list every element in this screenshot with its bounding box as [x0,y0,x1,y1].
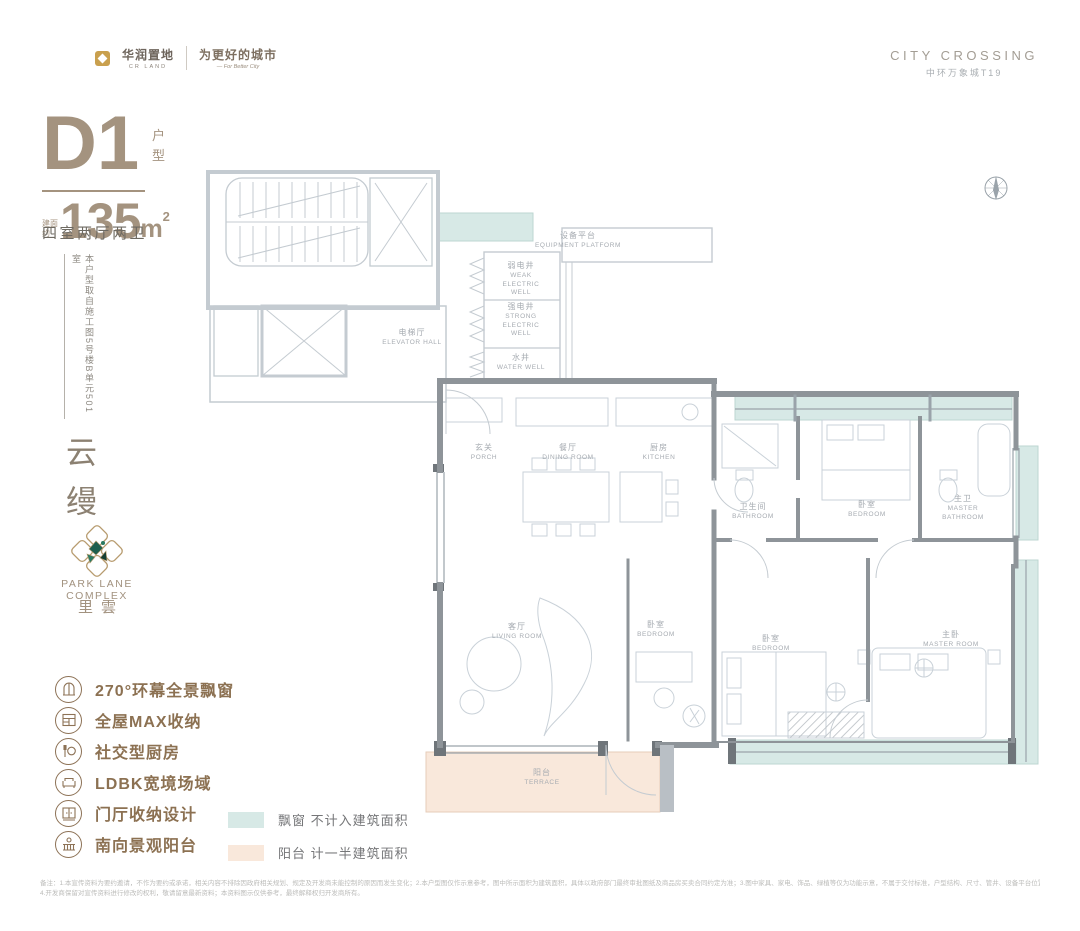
page: 华润置地 CR LAND 为更好的城市 — For Better City CI… [0,0,1080,931]
furniture [446,398,1010,738]
core-block [208,172,446,402]
windows [437,409,1026,762]
room-label-living-room: 客厅 LIVING ROOM [492,622,542,642]
room-label-equipment-platform: 设备平台 EQUIPMENT PLATFORM [535,231,621,251]
room-label-terrace: 阳台 TERRACE [524,768,559,788]
room-label-porch: 玄关 PORCH [471,443,497,463]
room-label-elevator-hall: 电梯厅 ELEVATOR HALL [382,328,441,348]
room-label-dining-room: 餐厅 DINING ROOM [542,443,593,463]
disclaimer: 备注：1.本宣传资料为要约邀请，不作为要约或承诺，相关内容不排除因政府相关规划、… [40,879,1040,900]
room-label-bedroom-1: 卧室 BEDROOM [848,500,886,520]
room-label-bedroom-2: 卧室 BEDROOM [637,620,675,640]
floorplan-drawing [0,0,1080,931]
disclaimer-line-1: 备注：1.本宣传资料为要约邀请，不作为要约或承诺，相关内容不排除因政府相关规划、… [40,879,1040,889]
room-label-kitchen: 厨房 KITCHEN [643,443,676,463]
room-label-bathroom: 卫生间 BATHROOM [732,502,774,522]
room-label-master-room: 主卧 MASTER ROOM [923,630,979,650]
wall-blocks [660,745,674,812]
compass-icon [985,176,1007,200]
room-label-weak-electric-well: 弱电井 WEAK ELECTRIC WELL [497,261,545,298]
room-label-master-bathroom: 主卫 MASTER BATHROOM [935,494,991,522]
room-label-bedroom-3: 卧室 BEDROOM [752,634,790,654]
room-label-strong-electric-well: 强电井 STRONG ELECTRIC WELL [497,302,545,339]
disclaimer-line-2: 4.开发商保留对宣传资料进行修改的权利，敬请留意最新资料；本资料图示仅供参考，最… [40,889,1040,899]
window-caps [433,464,1016,764]
room-label-water-well: 水井 WATER WELL [497,353,545,373]
walls [440,381,1016,745]
